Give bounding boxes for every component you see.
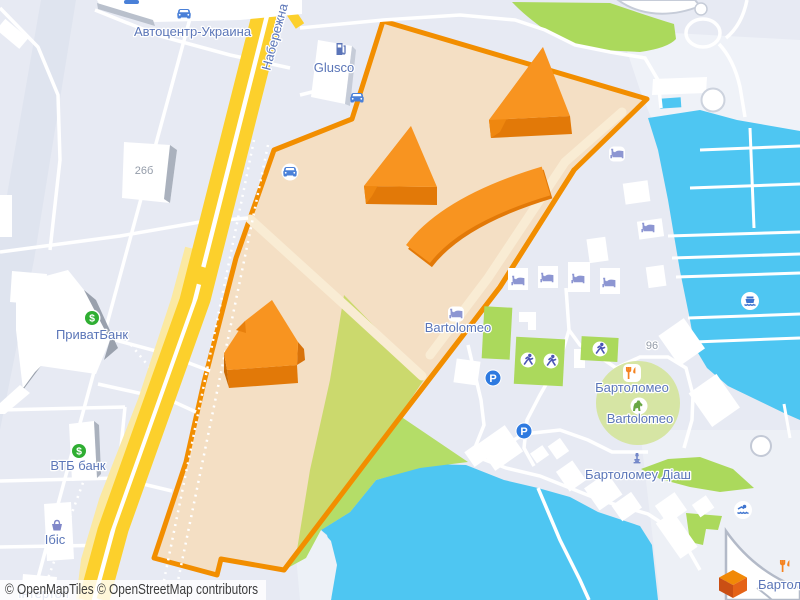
svg-text:ПриватБанк: ПриватБанк xyxy=(56,327,128,342)
svg-text:© OpenMapTiles © OpenStreetMap: © OpenMapTiles © OpenStreetMap contribut… xyxy=(5,582,258,598)
svg-text:Bartolomeo: Bartolomeo xyxy=(607,411,673,426)
svg-text:26б: 26б xyxy=(135,165,154,177)
svg-text:ВТБ банк: ВТБ банк xyxy=(50,458,105,473)
svg-text:Ібіс: Ібіс xyxy=(45,532,66,547)
svg-text:Бартоломео: Бартоломео xyxy=(595,380,669,395)
svg-text:Bartolomeo: Bartolomeo xyxy=(425,320,491,335)
svg-text:Автоцентр-Украина: Автоцентр-Украина xyxy=(134,24,252,39)
svg-text:Бартоло: Бартоло xyxy=(758,577,800,592)
svg-text:96: 96 xyxy=(646,340,658,352)
svg-text:Glusco: Glusco xyxy=(314,60,354,75)
svg-text:Бартоломеу Діаш: Бартоломеу Діаш xyxy=(585,467,691,482)
